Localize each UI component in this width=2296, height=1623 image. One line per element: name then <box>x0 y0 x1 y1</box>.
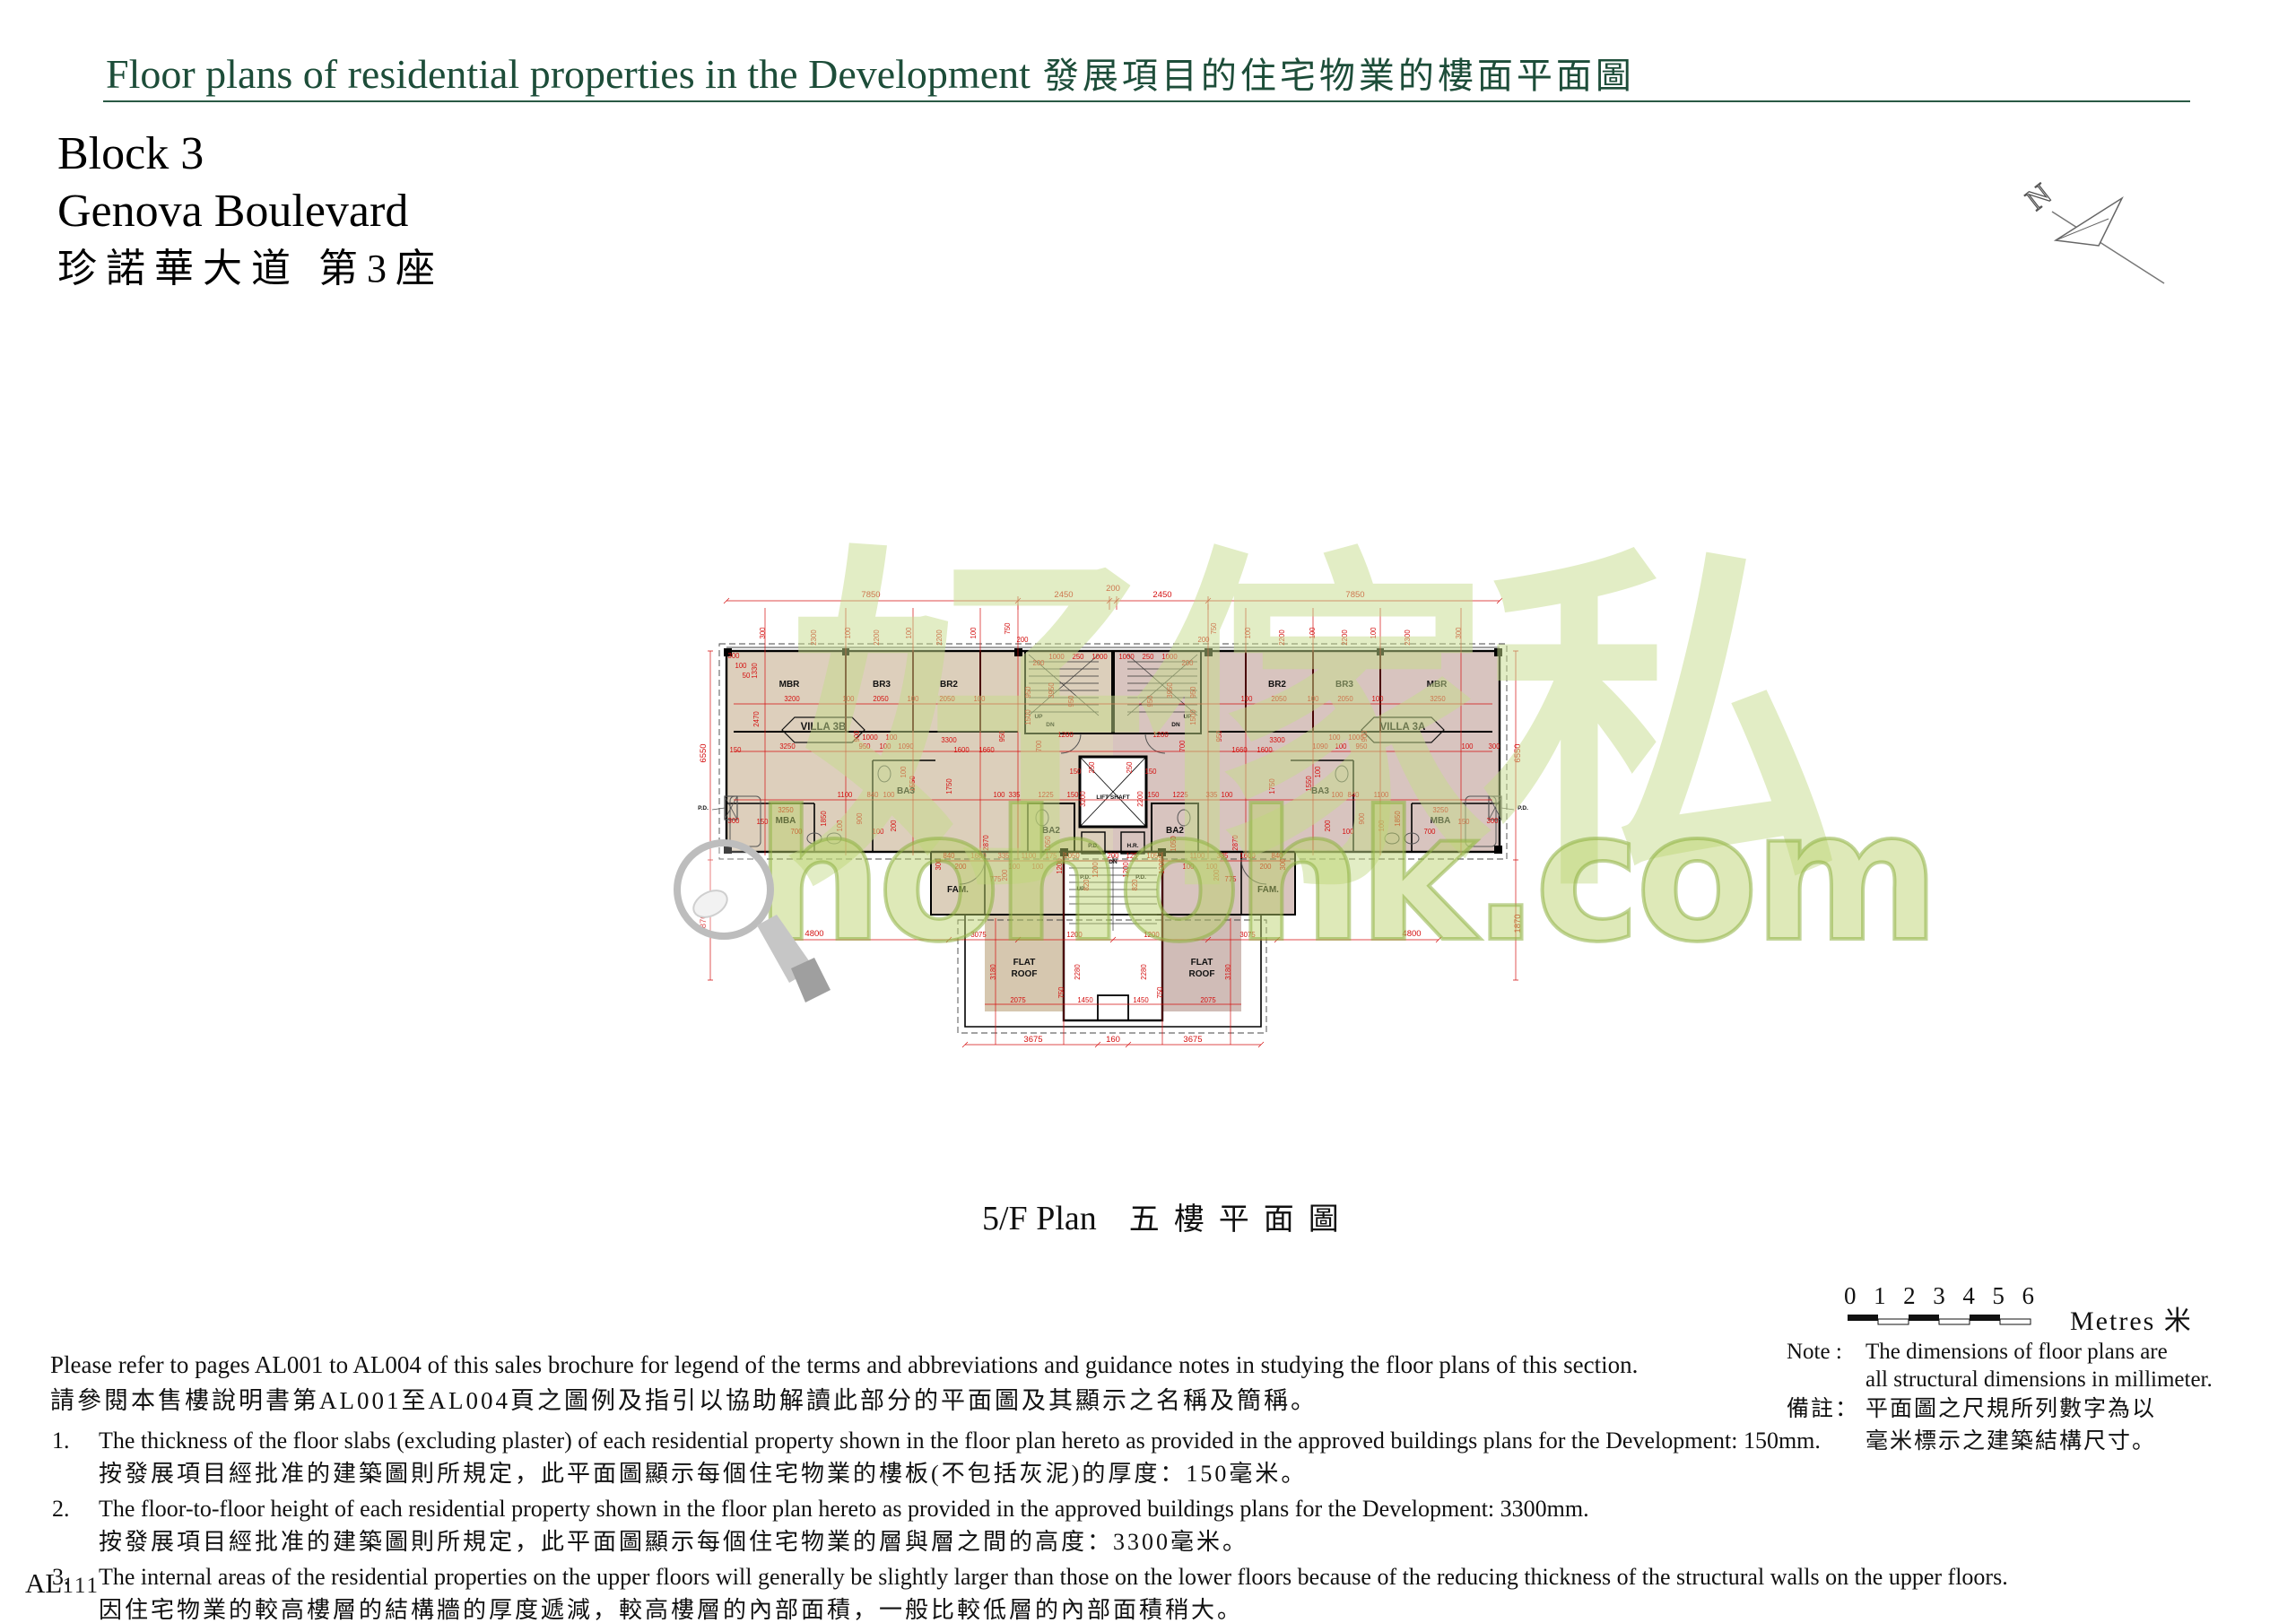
plan-dim-label: 300 <box>935 858 943 871</box>
north-arrow-icon: N <box>2016 169 2178 294</box>
plan-dim-label: 300 <box>727 652 740 660</box>
plan-dim-label: 150 <box>729 746 742 754</box>
plan-dim-label: 200 <box>1213 869 1221 881</box>
plan-dim-label: 3075 <box>1239 931 1256 939</box>
plan-dim-label: 900 <box>856 812 864 825</box>
brochure-page: Floor plans of residential properties in… <box>0 0 2296 1623</box>
plan-dim-label: 100 <box>842 695 855 703</box>
note-text-en: The thickness of the floor slabs (exclud… <box>99 1424 1821 1457</box>
plan-room-label: DN <box>1046 722 1055 728</box>
plan-dim-label: 200 <box>1016 636 1029 644</box>
plan-room-label: BA3 <box>1311 786 1329 796</box>
plan-dim-label: 100 <box>1461 742 1474 751</box>
plan-dim-label: 200 <box>1197 636 1210 644</box>
plan-dim-label: 150 <box>1147 791 1160 799</box>
plan-dim-label: 4800 <box>1402 929 1421 939</box>
plan-dim-label: 1600 <box>970 852 987 860</box>
plan-dim-label: 3075 <box>970 931 987 939</box>
plan-dim-label: 100 <box>1031 863 1044 871</box>
plan-room-label: FAM. <box>947 885 969 895</box>
plan-dim-label: 100 <box>1328 733 1341 742</box>
plan-dim-label: 200 <box>1181 659 1194 667</box>
note-text-en: The floor-to-floor height of each reside… <box>99 1492 1589 1525</box>
plan-dim-label: 750 <box>1156 986 1164 999</box>
plan-dim-label: 2200 <box>1136 791 1144 807</box>
plan-room-label: FAM. <box>1257 885 1279 895</box>
plan-dim-label: 750 <box>1210 622 1218 635</box>
plan-dim-label: 100 <box>1240 695 1253 703</box>
plan-dim-label: 3250 <box>779 742 796 751</box>
plan-dim-label: 1450 <box>1077 996 1093 1004</box>
plan-dim-label: 1200 <box>1091 862 1100 878</box>
plan-dim-label: 1870 <box>1513 914 1523 933</box>
plan-dim-label: 3200 <box>1079 791 1087 807</box>
plan-dim-label: 250 <box>1142 653 1154 661</box>
plan-dim-label: 2200 <box>935 629 944 646</box>
plan-room-label: BR3 <box>1335 680 1353 690</box>
plan-dim-label: 950 <box>1215 730 1223 742</box>
reference-paragraph: Please refer to pages AL001 to AL004 of … <box>50 1347 1638 1419</box>
plan-dim-label: 150 <box>1144 768 1157 776</box>
plan-dim-label: 3250 <box>1432 806 1448 814</box>
note-item: 3.The internal areas of the residential … <box>52 1560 2008 1623</box>
block-title: Block 3 Genova Boulevard 珍諾華大道 第3座 <box>57 126 444 298</box>
plan-dim-label: 700 <box>1035 740 1043 752</box>
plan-dim-label: 1600 <box>1257 746 1273 754</box>
plan-dim-label: 2280 <box>1074 964 1082 980</box>
page-title-zh: 發展項目的住宅物業的樓面平面圖 <box>1043 56 1635 96</box>
plan-dim-label: 200 <box>1324 820 1332 832</box>
scale-bar: 0 1 2 3 4 5 6 <box>1844 1282 2038 1328</box>
plan-dim-label: 1100 <box>1190 852 1205 860</box>
plan-dim-label: 1600 <box>953 746 970 754</box>
plan-dim-label: 2050 <box>873 695 889 703</box>
scale-tick: 1 <box>1874 1282 1886 1310</box>
plan-dim-label: 820 <box>1083 879 1091 891</box>
block-title-line2: Genova Boulevard <box>57 183 444 240</box>
plan-dim-label: 100 <box>1371 695 1384 703</box>
plan-dim-label: 750 <box>1057 986 1065 999</box>
note-en-line2: all structural dimensions in millimeter. <box>1865 1366 2213 1393</box>
plan-dim-label: 250 <box>1126 761 1134 774</box>
page-title-en: Floor plans of residential properties in… <box>106 51 1031 97</box>
plan-dim-label: 100 <box>1182 863 1195 871</box>
plan-dim-label: 2200 <box>873 629 881 646</box>
plan-dim-label: 150 <box>756 818 769 826</box>
plan-room-label: MBR <box>1427 680 1448 690</box>
scale-tick: 0 <box>1844 1282 1857 1310</box>
plan-dim-label: 1660 <box>978 746 995 754</box>
plan-dim-label: 3675 <box>1183 1035 1202 1045</box>
plan-dim-label: 1050 <box>1044 836 1052 852</box>
plan-dim-label: 1870 <box>699 914 709 933</box>
plan-dim-label: 335 <box>1008 791 1021 799</box>
plan-room-label: MBR <box>779 680 801 690</box>
plan-dim-label: 2300 <box>810 629 818 646</box>
plan-room-label: LIFT SHAFT <box>1096 794 1129 801</box>
plan-dim-label: 100 <box>900 766 908 778</box>
plan-dim-label: 1200 <box>1144 931 1160 939</box>
plan-dim-label: 1200 <box>1066 931 1083 939</box>
note-text-en: The internal areas of the residential pr… <box>99 1560 2008 1593</box>
reference-en: Please refer to pages AL001 to AL004 of … <box>50 1347 1638 1383</box>
plan-dim-label: 1850 <box>1394 811 1402 827</box>
plan-dim-label: 1000 <box>1348 733 1364 742</box>
page-number: AL111 <box>25 1567 100 1600</box>
note-text-zh: 按發展項目經批准的建築圖則所規定，此平面圖顯示每個住宅物業的層與層之間的高度：3… <box>99 1525 1248 1558</box>
plan-dim-label: 2470 <box>752 711 761 727</box>
plan-dim-label: 1200 <box>1158 858 1166 874</box>
note-en-line1: The dimensions of floor plans are <box>1865 1338 2168 1366</box>
plan-dim-label: 200 <box>1106 584 1120 594</box>
plan-dim-label: 3950 <box>1048 682 1056 699</box>
plan-dim-label: 100 <box>885 733 898 742</box>
plan-room-label: P.D. <box>1088 843 1099 849</box>
plan-dim-label: 950 <box>1024 686 1032 699</box>
plan-dim-label: 100 <box>735 662 747 670</box>
plan-room-label: BR3 <box>873 680 891 690</box>
plan-dim-label: 100 <box>836 820 844 832</box>
plan-dim-label: 200 <box>1032 659 1045 667</box>
plan-dim-label: 200 <box>1259 863 1272 871</box>
plan-dim-label: 1225 <box>1172 791 1188 799</box>
plan-dim-label: 1660 <box>1231 746 1248 754</box>
plan-dim-label: 820 <box>1131 879 1139 891</box>
plan-dim-label: 3300 <box>941 736 957 744</box>
plan-room-label: DN <box>1109 859 1118 865</box>
plan-dim-label: 950 <box>1146 695 1154 707</box>
plan-dim-label: 2050 <box>1271 695 1287 703</box>
plan-room-label: VILLA 3B <box>801 722 847 733</box>
scale-bar-unit: Metres 米 <box>2070 1298 2193 1338</box>
plan-room-label: ROOF <box>1189 969 1215 979</box>
plan-dim-label: 150 <box>1069 768 1082 776</box>
plan-dim-label: 2450 <box>1054 590 1073 600</box>
header-underline <box>103 100 2190 102</box>
plan-dim-label: 335 <box>997 852 1010 860</box>
plan-dim-label: 335 <box>1205 791 1218 799</box>
floor-plan-drawing: MBRMBRBR3BR3BR2BR2BA3BA3MBAMBABA2BA2FAM.… <box>680 581 1541 1092</box>
plan-dim-label: 100 <box>1342 828 1354 836</box>
plan-room-label: P.D. <box>1518 805 1528 811</box>
scale-bar-ticks: 0 1 2 3 4 5 6 <box>1844 1282 2034 1310</box>
plan-dim-label: 1090 <box>898 742 914 751</box>
plan-dim-label: 100 <box>1221 791 1233 799</box>
note-prefix-en: Note : <box>1787 1338 1865 1366</box>
plan-dim-label: 700 <box>1178 740 1187 752</box>
plan-dim-label: 700 <box>790 828 803 836</box>
plan-room-label: BR2 <box>940 680 958 690</box>
plan-dim-label: 1000 <box>1048 653 1065 661</box>
plan-dim-label: 2280 <box>1140 964 1148 980</box>
plan-dim-label: 1090 <box>1312 742 1328 751</box>
plan-dim-label: 950 <box>1189 686 1197 699</box>
plan-dim-label: 2870 <box>1231 835 1239 851</box>
plan-dim-label: 200 <box>954 863 967 871</box>
plan-dim-label: 100 <box>905 627 913 639</box>
plan-dim-label: 300 <box>1486 817 1499 825</box>
scale-tick: 2 <box>1903 1282 1916 1310</box>
plan-dim-label: 2450 <box>1152 590 1171 600</box>
plan-room-label: BA2 <box>1042 826 1060 836</box>
note-number: 2. <box>52 1492 99 1525</box>
plan-dim-label: 2300 <box>1404 629 1412 646</box>
plan-dim-label: 1000 <box>1161 653 1178 661</box>
plan-room-label: UP <box>1034 714 1043 720</box>
plan-dim-label: 50 <box>743 672 751 680</box>
plan-dim-label: 1330 <box>751 663 759 679</box>
plan-dim-label: 100 <box>1331 791 1344 799</box>
page-number-digits: 111 <box>62 1574 100 1598</box>
page-number-prefix: AL <box>25 1567 62 1599</box>
plan-caption: 5/F Plan五樓平面圖 <box>982 1194 1353 1238</box>
note-item: 2.The floor-to-floor height of each resi… <box>52 1492 2008 1558</box>
page-title: Floor plans of residential properties in… <box>106 47 1635 99</box>
block-title-line3: 珍諾華大道 第3座 <box>57 240 444 298</box>
plan-dim-label: 1550 <box>1305 776 1313 792</box>
plan-dim-label: 3180 <box>989 964 997 980</box>
svg-text:N: N <box>2020 178 2057 217</box>
note-text-zh: 因住宅物業的較高樓層的結構牆的厚度遞減，較高樓層的內部面積，一般比較低層的內部面… <box>99 1593 1243 1623</box>
plan-dim-label: 750 <box>1004 622 1012 635</box>
plan-dim-label: 200 <box>1001 869 1009 881</box>
plan-dim-label: 100 <box>1335 742 1347 751</box>
plan-dim-label: 2050 <box>1337 695 1353 703</box>
plan-dim-label: 250 <box>1088 761 1096 774</box>
plan-dim-label: 1200 <box>1122 862 1130 878</box>
plan-dim-label: 950 <box>1067 695 1075 707</box>
plan-dim-label: 300 <box>1488 742 1500 751</box>
plan-dim-label: 950 <box>998 730 1006 742</box>
plan-dim-label: 3250 <box>778 806 794 814</box>
plan-dim-label: 1200 <box>1152 731 1169 739</box>
plan-dim-label: 7850 <box>1345 590 1364 600</box>
plan-dim-label: 1750 <box>945 778 953 794</box>
plan-room-label: H.R. <box>1127 843 1139 849</box>
scale-tick: 5 <box>1992 1282 2005 1310</box>
plan-dim-label: 100 <box>844 627 852 639</box>
plan-dim-label: 100 <box>907 695 919 703</box>
plan-dim-label: 2075 <box>1010 996 1026 1004</box>
plan-dim-label: 1000 <box>862 733 878 742</box>
plan-room-label: BR2 <box>1268 680 1286 690</box>
plan-dim-label: 1000 <box>1118 653 1135 661</box>
plan-dim-label: 2870 <box>982 835 990 851</box>
plan-dim-label: 3675 <box>1023 1035 1042 1045</box>
plan-dim-label: 4800 <box>804 929 823 939</box>
plan-dim-label: 300 <box>727 817 740 825</box>
plan-dim-label: 950 <box>858 742 871 751</box>
plan-dim-label: 1050 <box>1064 852 1080 860</box>
plan-dim-label: 100 <box>1008 863 1021 871</box>
plan-dim-label: 1100 <box>838 791 853 799</box>
plan-dim-label: 1200 <box>1057 731 1074 739</box>
plan-dim-label: 100 <box>1244 627 1252 639</box>
plan-caption-zh: 五樓平面圖 <box>1129 1203 1353 1237</box>
plan-caption-en: 5/F Plan <box>982 1200 1097 1237</box>
plan-dim-label: 1450 <box>1133 996 1149 1004</box>
notes-list: 1.The thickness of the floor slabs (excl… <box>52 1424 2008 1623</box>
plan-dim-label: 1850 <box>820 811 828 827</box>
plan-dim-label: 2075 <box>1200 996 1216 1004</box>
block-title-line1: Block 3 <box>57 126 444 183</box>
plan-dim-label: 3200 <box>784 695 800 703</box>
plan-dim-label: 1750 <box>1268 778 1276 794</box>
plan-room-label: DN <box>1171 722 1180 728</box>
plan-dim-label: 1225 <box>1038 791 1054 799</box>
note-text-zh: 按發展項目經批准的建築圖則所規定，此平面圖顯示每個住宅物業的樓板(不包括灰泥)的… <box>99 1457 1307 1490</box>
plan-dim-label: 3250 <box>1430 695 1446 703</box>
note-zh-line1: 平面圖之尺規所列數字為以 <box>1865 1393 2156 1426</box>
plan-dim-label: 2050 <box>939 695 955 703</box>
plan-dim-label: 150 <box>1457 818 1470 826</box>
plan-dim-label: 900 <box>1358 812 1366 825</box>
plan-dim-label: 1050 <box>1170 836 1178 852</box>
plan-room-label: VILLA 3A <box>1380 722 1426 733</box>
plan-dim-label: 160 <box>1106 1035 1120 1045</box>
plan-dim-label: 100 <box>879 742 891 751</box>
plan-dim-label: 100 <box>883 791 895 799</box>
plan-dim-label: 200 <box>1107 852 1119 860</box>
plan-dim-label: 3180 <box>1224 964 1232 980</box>
plan-dim-label: 7850 <box>861 590 880 600</box>
plan-room-label: ROOF <box>1012 969 1038 979</box>
note-number: 1. <box>52 1424 99 1457</box>
plan-room-label: P.D. <box>698 805 709 811</box>
plan-dim-label: 950 <box>1355 742 1368 751</box>
plan-dim-label: 1500 <box>1189 709 1197 725</box>
plan-dim-label: 200 <box>890 820 898 832</box>
plan-dim-label: 700 <box>1423 828 1436 836</box>
plan-room-label: FLAT <box>1013 958 1036 968</box>
plan-dim-label: 775 <box>1224 875 1237 883</box>
plan-dim-label: 100 <box>1309 627 1317 639</box>
plan-dim-label: 150 <box>1066 791 1079 799</box>
reference-zh: 請參閱本售樓說明書第AL001至AL004頁之圖例及指引以協助解讀此部分的平面圖… <box>50 1383 1638 1419</box>
plan-dim-label: 300 <box>1455 627 1463 639</box>
plan-dim-label: 100 <box>1378 820 1386 832</box>
plan-dim-label: 300 <box>759 627 767 639</box>
plan-dim-label: 1000 <box>1091 653 1108 661</box>
scale-tick: 6 <box>2022 1282 2034 1310</box>
plan-room-label: MBA <box>776 816 796 826</box>
plan-room-label: FLAT <box>1191 958 1213 968</box>
plan-dim-label: 1100 <box>1022 852 1037 860</box>
plan-dim-label: 100 <box>970 627 978 639</box>
plan-dim-label: 100 <box>1314 766 1322 778</box>
scale-tick: 3 <box>1933 1282 1945 1310</box>
plan-dim-label: 100 <box>872 828 884 836</box>
scale-bar-graphic <box>1844 1312 2038 1328</box>
plan-dim-label: 1500 <box>1024 709 1032 725</box>
plan-dim-label: 3950 <box>1166 682 1174 699</box>
plan-room-label: BA2 <box>1166 826 1184 836</box>
plan-dim-label: 840 <box>943 852 955 860</box>
plan-dim-label: 840 <box>866 791 879 799</box>
plan-dim-label: 335 <box>1216 852 1229 860</box>
plan-dim-label: 1550 <box>909 776 917 792</box>
note-item: 1.The thickness of the floor slabs (excl… <box>52 1424 2008 1490</box>
plan-dim-label: 3300 <box>1269 736 1285 744</box>
plan-dim-label: 1600 <box>1239 852 1256 860</box>
plan-dim-label: 300 <box>1279 858 1287 871</box>
plan-dim-label: 100 <box>993 791 1005 799</box>
plan-dim-label: 100 <box>973 695 986 703</box>
scale-tick: 4 <box>1962 1282 1975 1310</box>
plan-dim-label: 100 <box>1307 695 1319 703</box>
plan-dim-label: 1200 <box>1056 858 1064 874</box>
plan-dim-label: 100 <box>1370 627 1378 639</box>
plan-room-label: MBA <box>1431 816 1451 826</box>
note-prefix-zh: 備註： <box>1787 1393 1865 1426</box>
plan-dim-label: 900 <box>853 730 861 742</box>
plan-dim-label: 125 <box>1126 852 1138 860</box>
plan-dim-label: 6550 <box>699 743 709 762</box>
plan-dim-label: 1100 <box>1374 791 1389 799</box>
plan-dim-label: 2200 <box>1341 629 1349 646</box>
plan-dim-label: 250 <box>1072 653 1084 661</box>
plan-dim-label: 6550 <box>1513 743 1523 762</box>
plan-dim-label: 840 <box>1347 791 1360 799</box>
plan-dim-label: 2200 <box>1278 629 1286 646</box>
